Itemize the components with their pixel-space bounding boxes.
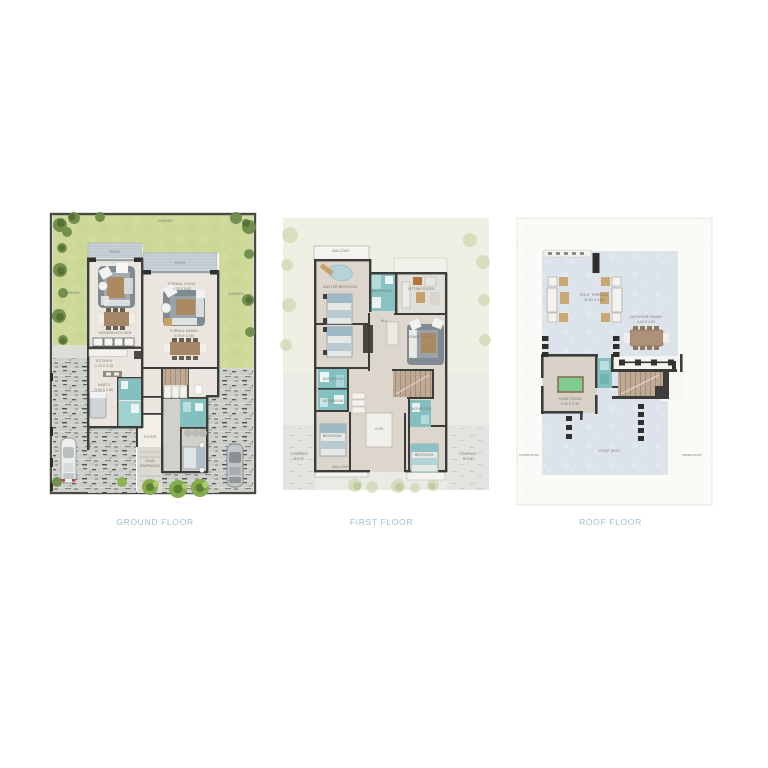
- svg-text:BATHROOM: BATHROOM: [372, 289, 393, 293]
- svg-text:4.45 X 5.28: 4.45 X 5.28: [561, 402, 579, 406]
- svg-text:GARDEN: GARDEN: [228, 292, 244, 296]
- svg-text:BATHROOM: BATHROOM: [323, 377, 344, 381]
- svg-text:GARDEN: GARDEN: [157, 219, 173, 223]
- svg-text:MODERN KITCHEN: MODERN KITCHEN: [99, 331, 132, 335]
- svg-text:OUTDOOR DINING: OUTDOOR DINING: [630, 315, 662, 319]
- svg-text:3.05 X 2.60: 3.05 X 2.60: [95, 388, 113, 392]
- svg-text:MAIN: MAIN: [146, 459, 155, 463]
- svg-text:ROOF FLOOR: ROOF FLOOR: [579, 517, 642, 527]
- svg-text:COMPANY: COMPANY: [290, 452, 309, 456]
- svg-text:BATHROOM: BATHROOM: [411, 407, 432, 411]
- svg-text:11.63 X 4.50: 11.63 X 4.50: [584, 298, 604, 302]
- svg-text:ROOF TERRACE: ROOF TERRACE: [580, 293, 609, 297]
- svg-text:PATIO: PATIO: [110, 250, 120, 254]
- svg-text:FORMAL LIVING: FORMAL LIVING: [168, 282, 196, 286]
- svg-text:BALCONY: BALCONY: [332, 249, 350, 253]
- svg-text:ROOF: ROOF: [294, 457, 305, 461]
- svg-text:MASTER BEDROOM: MASTER BEDROOM: [323, 285, 358, 289]
- svg-text:BALCONY: BALCONY: [332, 465, 350, 469]
- svg-text:BEDROOM: BEDROOM: [323, 434, 342, 438]
- svg-text:ENTRANCE: ENTRANCE: [140, 464, 160, 468]
- svg-text:FOYER: FOYER: [144, 435, 157, 439]
- svg-text:M.A: M.A: [381, 319, 388, 323]
- svg-text:UPPER ROOF: UPPER ROOF: [519, 453, 539, 457]
- svg-text:ROOF: ROOF: [463, 457, 474, 461]
- svg-text:GROUND FLOOR: GROUND FLOOR: [116, 517, 193, 527]
- svg-text:FORMAL DINING: FORMAL DINING: [170, 329, 199, 333]
- svg-text:MAID'S: MAID'S: [98, 383, 111, 387]
- svg-text:BEDROOM: BEDROOM: [415, 453, 434, 457]
- svg-text:PATIO: PATIO: [175, 261, 185, 265]
- svg-text:KITCHEN: KITCHEN: [96, 359, 112, 363]
- svg-text:GAME ROOM: GAME ROOM: [559, 397, 582, 401]
- svg-text:UPPER ROOF: UPPER ROOF: [682, 453, 702, 457]
- svg-text:GARDEN: GARDEN: [64, 291, 80, 295]
- svg-text:SITTING ROOM: SITTING ROOM: [408, 287, 434, 291]
- svg-text:FIRST FLOOR: FIRST FLOOR: [350, 517, 413, 527]
- svg-text:COMPANY: COMPANY: [459, 452, 478, 456]
- svg-text:FAMILY LIVING: FAMILY LIVING: [409, 335, 434, 339]
- svg-text:BATHROOM: BATHROOM: [323, 399, 344, 403]
- svg-text:4.75 X 4.240: 4.75 X 4.240: [174, 334, 194, 338]
- svg-text:VOID: VOID: [375, 427, 384, 431]
- svg-text:4.75 X 5.62: 4.75 X 5.62: [173, 287, 191, 291]
- svg-text:4.75 X 3.35: 4.75 X 3.35: [95, 364, 113, 368]
- svg-text:ROOF DECK: ROOF DECK: [599, 449, 621, 453]
- svg-text:4.42 X 4.00: 4.42 X 4.00: [637, 320, 655, 324]
